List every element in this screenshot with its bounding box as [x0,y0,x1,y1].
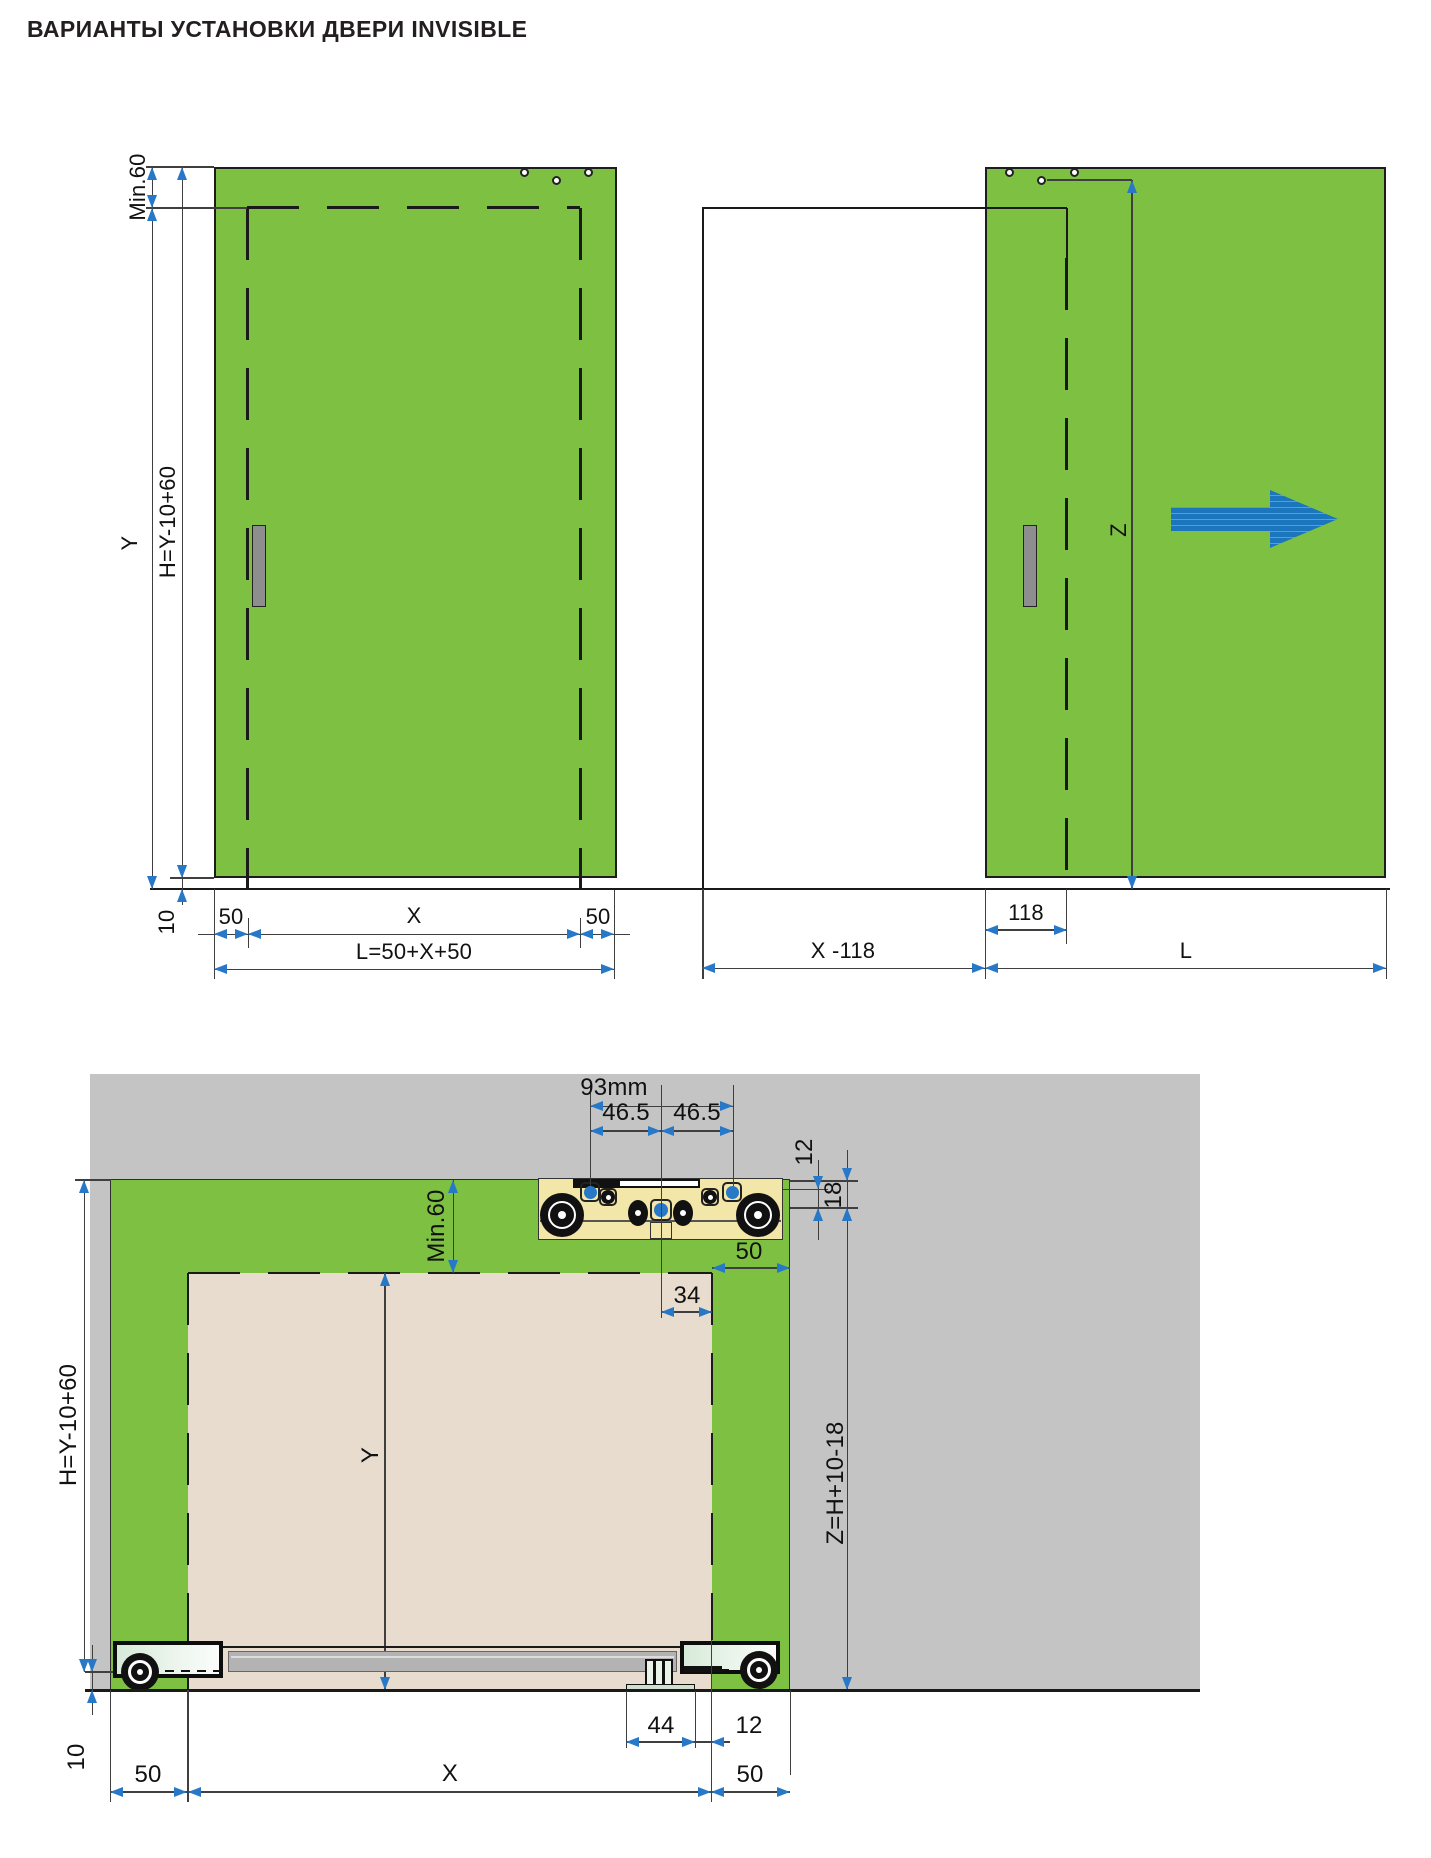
dim-line-x118 [702,968,985,970]
dim-tick [146,207,247,209]
arrowhead [842,1208,852,1221]
dim-label-50-right: 50 [586,904,611,930]
dim-label-z: Z [1106,523,1132,537]
dim-line-y [384,1273,386,1690]
arrowhead [777,1787,790,1797]
opening-edge-top [702,207,1067,209]
dim-line-h [84,1180,86,1672]
arrowhead [87,1659,97,1672]
arrowhead [699,1307,712,1317]
arrowhead [702,963,715,973]
dim-label-12-bottom: 12 [735,1712,762,1740]
dim-line-50-x-50 [198,934,630,936]
roller-center [680,1210,686,1216]
door-handle [252,525,266,607]
screw-center [606,1195,611,1200]
arrowhead [972,963,985,973]
dim-label-44: 44 [647,1712,674,1740]
opening-hidden-edge-left [187,1273,190,1690]
wheel-hub [558,1211,566,1219]
dim-label-h: H=Y-10+60 [155,466,181,578]
arrowhead [711,1787,724,1797]
arrowhead [79,1180,89,1193]
ext-line [661,1085,663,1318]
arrowhead [712,1263,725,1273]
dim-label-465-left: 46.5 [602,1099,650,1127]
dim-line-10 [92,1645,94,1715]
dim-label-50-top: 50 [735,1238,762,1266]
opening-edge-right-cap [1066,208,1068,258]
dim-line-l [214,969,614,971]
ext-line [711,1640,713,1802]
installation-diagram-page: ВАРИАНТЫ УСТАНОВКИ ДВЕРИ INVISIBLE Min.6… [0,0,1431,1858]
dim-label-min60: Min.60 [423,1189,451,1262]
ext-line [110,1690,112,1802]
arrowhead [214,964,227,974]
screw-hole [1037,176,1046,185]
dim-label-x: X [442,1760,458,1788]
arrowhead [214,929,227,939]
rail-highlight [231,1656,674,1658]
arrowhead [580,929,593,939]
arrowhead [188,1787,201,1797]
ext-line [790,1690,792,1775]
bottom-rail [228,1651,677,1672]
dim-label-length: L [1180,938,1192,964]
screw-hole [1070,168,1079,177]
wheel-hub [756,1667,762,1673]
dim-label-12-top: 12 [791,1138,819,1165]
screw-hole [584,168,593,177]
arrowhead [1054,925,1067,935]
dim-label-50-right: 50 [736,1761,763,1789]
arrowhead [1127,180,1137,193]
arrowhead [110,1787,123,1797]
door-bottom-edge [188,1646,712,1648]
arrowhead [777,1263,790,1273]
screw-hole [520,168,529,177]
dim-label-50-left: 50 [134,1761,161,1789]
screw-hole [1005,168,1014,177]
dim-label-10: 10 [63,1743,91,1770]
arrowhead [842,1168,852,1181]
dim-label-h: H=Y-10+60 [55,1364,83,1486]
arrowhead [177,889,187,902]
arrowhead [235,929,248,939]
arrowhead [248,929,261,939]
dim-label-length: L=50+X+50 [356,939,472,965]
arrowhead [87,1690,97,1703]
arrowhead [985,925,998,935]
door-handle [1023,525,1037,607]
floor-guide-fin [663,1659,673,1686]
wheel-hub [754,1211,762,1219]
arrowhead [147,208,157,221]
hidden-axis [165,1670,222,1672]
arrowhead [985,963,998,973]
wheel-hub [137,1669,143,1675]
ext-line [187,1690,189,1802]
dim-line-12 [818,1160,820,1240]
opening-hidden-edge-top [247,206,580,209]
arrowhead [567,929,580,939]
dim-label-50-left: 50 [219,904,244,930]
arrowhead [174,1787,187,1797]
dim-label-z: Z=H+10-18 [822,1421,850,1544]
dim-label-465-right: 46.5 [673,1099,721,1127]
dim-label-18: 18 [820,1181,848,1208]
arrowhead [177,865,187,878]
dim-label-93mm: 93mm [580,1074,647,1102]
arrowhead [601,929,614,939]
door-panel-behind [188,1273,712,1690]
dim-line-50-x-50 [110,1791,790,1793]
floor-line [85,1689,1200,1692]
opening-hidden-edge-left [246,208,249,889]
arrowhead [1373,963,1386,973]
dim-label-y: Y [357,1447,385,1463]
dim-label-10: 10 [154,910,180,935]
fixing-bolt [726,1186,739,1199]
arrowhead [147,876,157,889]
ext-line [1066,889,1068,944]
arrowhead [682,1737,695,1747]
opening-edge-left [702,208,704,889]
arrowhead [813,1208,823,1221]
track-rail-slot [620,1181,698,1186]
arrowhead [720,1126,733,1136]
arrowhead [601,964,614,974]
arrowhead [698,1787,711,1797]
floor-line [612,888,1390,890]
arrowhead [626,1737,639,1747]
dim-label-118: 118 [1008,900,1044,926]
opening-hidden-edge-right [711,1273,714,1640]
fixing-bolt [584,1186,597,1199]
roller-center [635,1210,641,1216]
arrowhead [1127,876,1137,889]
dim-label-x118: X -118 [811,938,875,964]
hidden-axis [688,1669,736,1671]
opening-hidden-edge-right [579,208,582,889]
arrowhead [648,1126,661,1136]
arrowhead [380,1273,390,1286]
screw-center [708,1195,713,1200]
door-panel [214,167,617,878]
arrowhead [711,1737,724,1747]
dim-label-34: 34 [673,1282,700,1310]
dim-line-y [152,208,154,889]
arrowhead [661,1126,674,1136]
arrowhead [720,1101,733,1111]
dim-line-h [182,167,184,878]
arrowhead [590,1126,603,1136]
screw-hole [552,176,561,185]
dim-line-l [985,968,1386,970]
arrowhead [590,1101,603,1111]
dim-tick [1047,179,1132,181]
dim-label-y: Y [117,536,143,551]
arrowhead [661,1307,674,1317]
dim-label-x: X [407,903,422,929]
page-title: ВАРИАНТЫ УСТАНОВКИ ДВЕРИ INVISIBLE [27,16,527,43]
arrowhead [177,167,187,180]
opening-hidden-edge-right [1065,258,1068,889]
